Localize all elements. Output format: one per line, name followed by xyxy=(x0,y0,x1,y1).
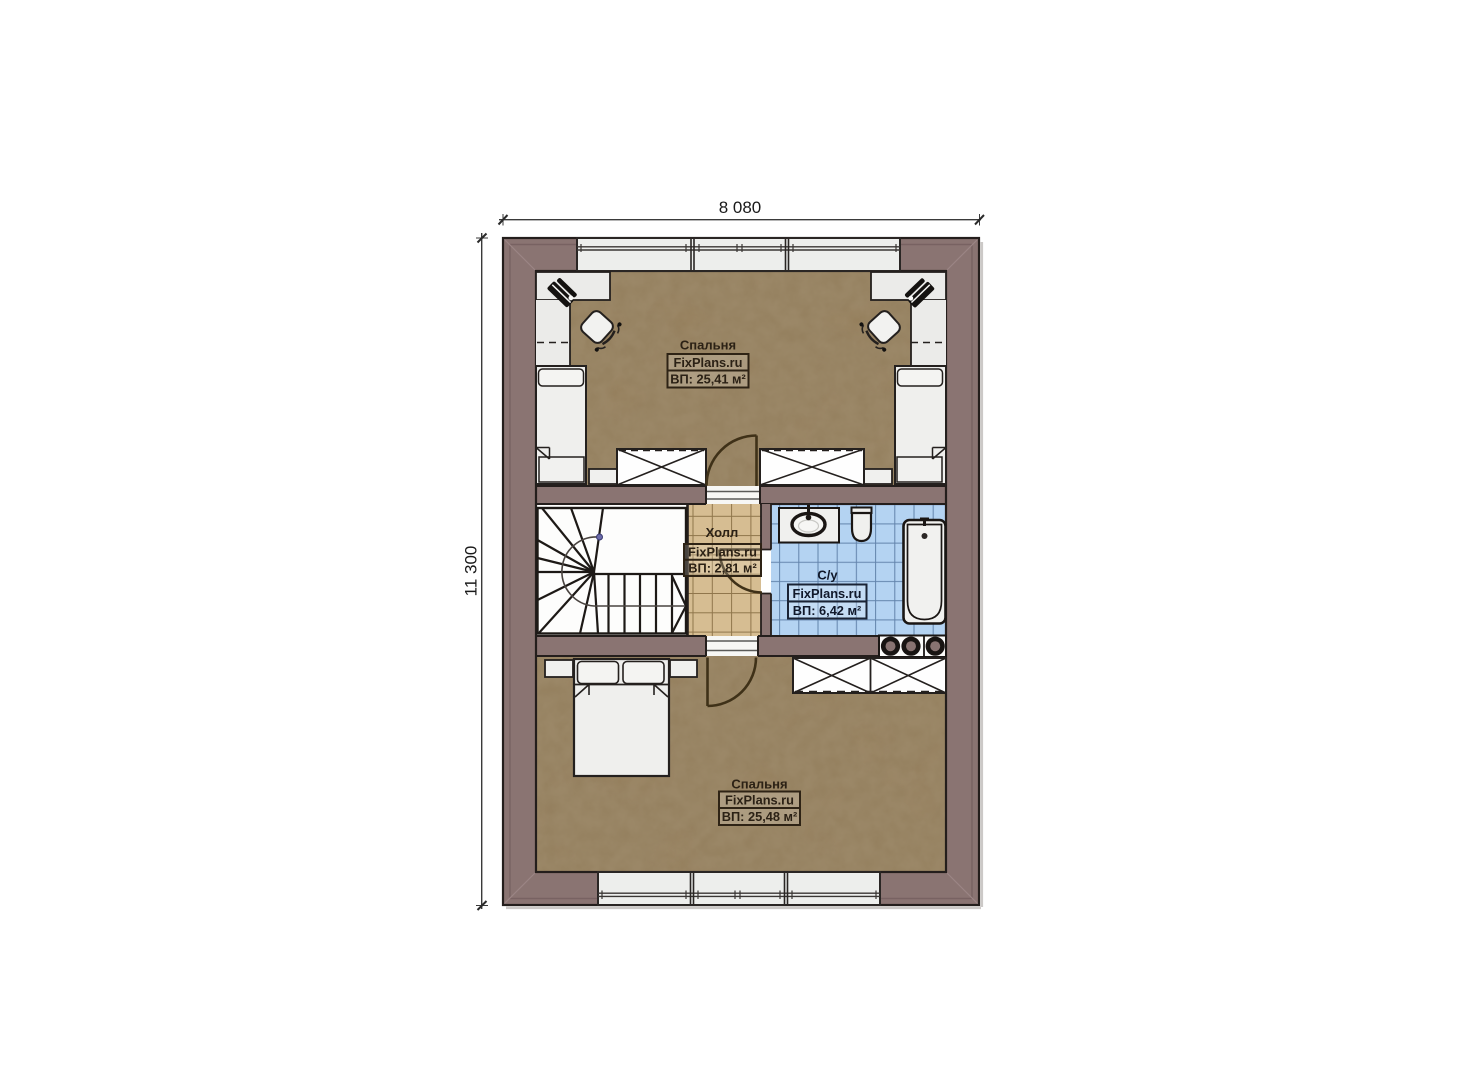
svg-text:ВП: 2,81 м²: ВП: 2,81 м² xyxy=(688,561,756,576)
svg-text:FixPlans.ru: FixPlans.ru xyxy=(674,355,743,370)
svg-text:ВП: 25,48 м²: ВП: 25,48 м² xyxy=(722,809,798,824)
svg-text:FixPlans.ru: FixPlans.ru xyxy=(725,792,794,807)
svg-text:Холл: Холл xyxy=(706,525,739,540)
svg-text:Спальня: Спальня xyxy=(731,777,787,792)
svg-text:11 300: 11 300 xyxy=(462,546,481,597)
svg-text:FixPlans.ru: FixPlans.ru xyxy=(688,545,757,560)
svg-text:ВП: 6,42 м²: ВП: 6,42 м² xyxy=(793,603,861,618)
svg-text:С/у: С/у xyxy=(817,568,838,583)
svg-text:ВП: 25,41 м²: ВП: 25,41 м² xyxy=(670,372,746,387)
svg-text:8 080: 8 080 xyxy=(719,198,762,217)
svg-text:Спальня: Спальня xyxy=(680,338,736,353)
svg-text:FixPlans.ru: FixPlans.ru xyxy=(793,586,862,601)
